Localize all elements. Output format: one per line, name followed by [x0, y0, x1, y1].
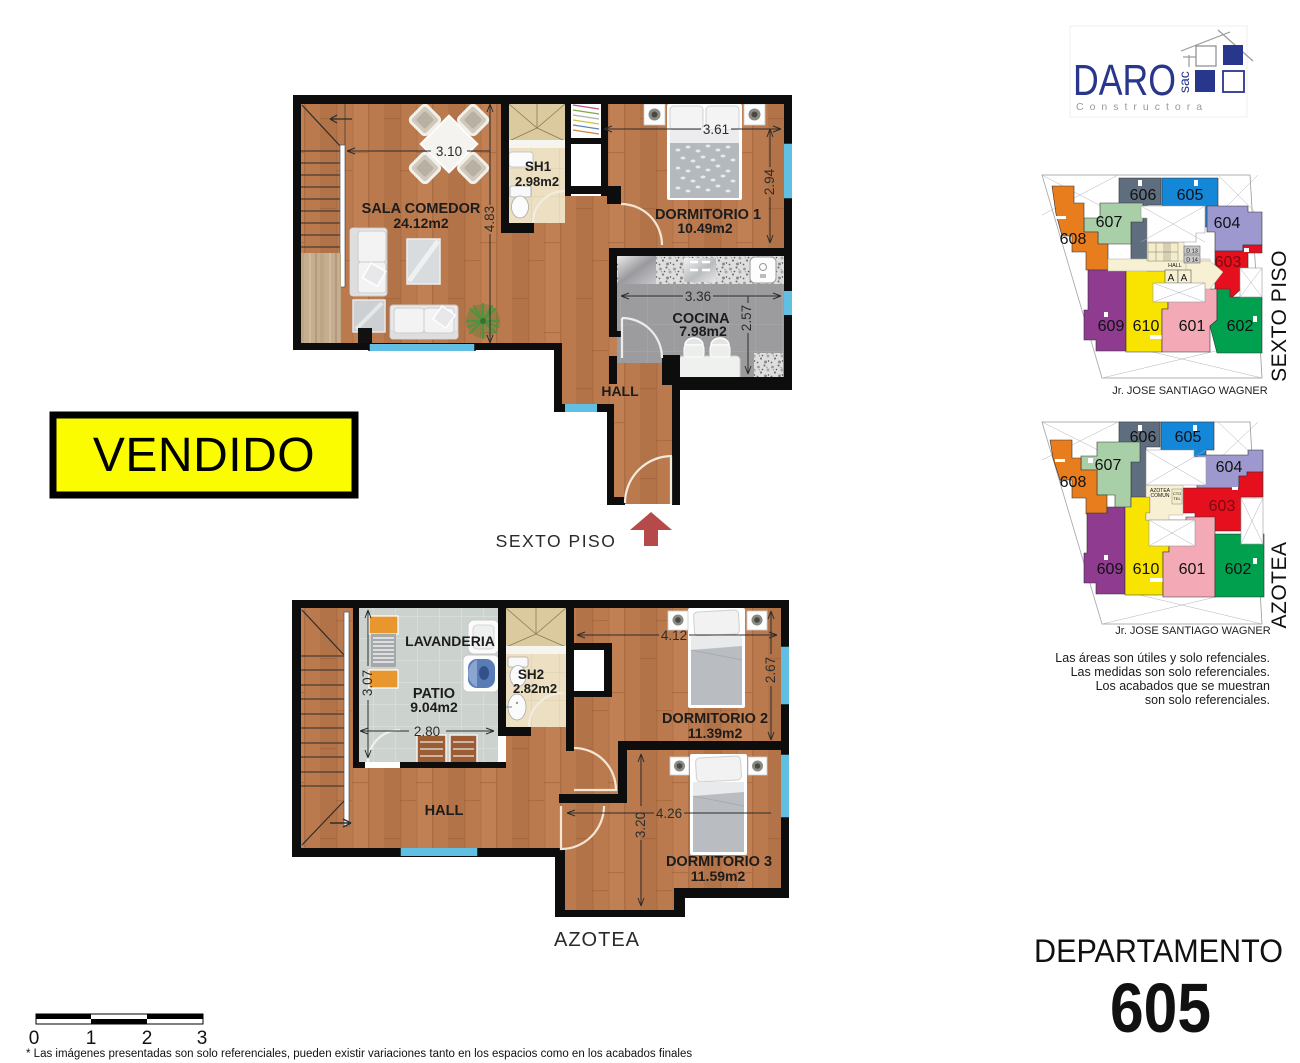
svg-text:607: 607 — [1095, 457, 1122, 474]
svg-text:DARO: DARO — [1073, 56, 1176, 105]
svg-text:1: 1 — [86, 1028, 97, 1049]
svg-text:606: 606 — [1130, 187, 1157, 204]
svg-text:HALL: HALL — [425, 803, 464, 819]
svg-text:son solo referenciales.: son solo referenciales. — [1145, 693, 1270, 707]
svg-text:2.82m2: 2.82m2 — [513, 681, 557, 696]
svg-text:2.67: 2.67 — [763, 657, 778, 683]
svg-text:605: 605 — [1175, 429, 1202, 446]
svg-text:sac: sac — [1176, 71, 1192, 93]
svg-text:SEXTO PISO: SEXTO PISO — [1268, 250, 1291, 382]
svg-text:* Las imágenes presentadas son: * Las imágenes presentadas son solo refe… — [26, 1048, 692, 1060]
svg-text:601: 601 — [1179, 561, 1206, 578]
svg-text:9.04m2: 9.04m2 — [410, 699, 458, 715]
svg-text:603: 603 — [1209, 498, 1236, 515]
svg-text:D 13: D 13 — [1186, 249, 1198, 255]
svg-text:3.10: 3.10 — [436, 144, 462, 159]
svg-text:11.39m2: 11.39m2 — [688, 725, 743, 741]
svg-text:604: 604 — [1216, 459, 1243, 476]
svg-text:2.94: 2.94 — [762, 168, 777, 195]
svg-text:SH2: SH2 — [518, 667, 544, 682]
svg-text:HALL: HALL — [1168, 263, 1182, 269]
svg-text:601: 601 — [1179, 318, 1206, 335]
svg-text:Constructora: Constructora — [1076, 101, 1208, 113]
svg-text:D 14: D 14 — [1186, 258, 1198, 264]
svg-text:Los acabados que se muestran: Los acabados que se muestran — [1096, 679, 1270, 693]
svg-text:Las medidas son solo referenci: Las medidas son solo referenciales. — [1071, 665, 1270, 679]
svg-text:609: 609 — [1098, 318, 1125, 335]
svg-text:602: 602 — [1227, 318, 1254, 335]
svg-text:Las áreas son útiles y solo re: Las áreas son útiles y solo refenciales. — [1055, 651, 1270, 665]
svg-text:Jr. JOSE SANTIAGO WAGNER: Jr. JOSE SANTIAGO WAGNER — [1115, 625, 1271, 637]
svg-text:DEPARTAMENTO: DEPARTAMENTO — [1034, 933, 1283, 969]
svg-text:COMUN: COMUN — [1151, 493, 1170, 499]
svg-text:AZOTEA: AZOTEA — [554, 929, 640, 951]
svg-text:24.12m2: 24.12m2 — [393, 215, 448, 231]
svg-text:4.83: 4.83 — [482, 206, 497, 232]
svg-text:VENDIDO: VENDIDO — [93, 429, 315, 482]
svg-text:3.20: 3.20 — [633, 812, 648, 838]
svg-text:3.36: 3.36 — [685, 289, 711, 304]
svg-text:3: 3 — [197, 1028, 208, 1049]
svg-text:2: 2 — [142, 1028, 153, 1049]
svg-text:608: 608 — [1060, 231, 1087, 248]
svg-text:HALL: HALL — [601, 383, 639, 399]
svg-text:605: 605 — [1177, 187, 1204, 204]
svg-text:SEXTO PISO: SEXTO PISO — [496, 531, 617, 551]
svg-text:TEL: TEL — [1173, 496, 1181, 501]
svg-text:3.07: 3.07 — [360, 670, 375, 696]
svg-text:608: 608 — [1060, 474, 1087, 491]
svg-text:605: 605 — [1110, 969, 1211, 1047]
svg-text:4.26: 4.26 — [656, 806, 682, 821]
svg-text:604: 604 — [1214, 215, 1241, 232]
svg-text:609: 609 — [1097, 561, 1124, 578]
svg-text:0: 0 — [29, 1028, 40, 1049]
svg-text:610: 610 — [1133, 318, 1160, 335]
svg-text:4.12: 4.12 — [661, 628, 687, 643]
svg-text:607: 607 — [1096, 214, 1123, 231]
svg-text:10.49m2: 10.49m2 — [677, 220, 732, 236]
svg-text:SH1: SH1 — [525, 159, 552, 174]
svg-text:2.80: 2.80 — [414, 724, 440, 739]
svg-text:11.59m2: 11.59m2 — [691, 868, 746, 884]
svg-text:7.98m2: 7.98m2 — [679, 323, 727, 339]
svg-text:602: 602 — [1225, 561, 1252, 578]
svg-text:Jr. JOSE SANTIAGO WAGNER: Jr. JOSE SANTIAGO WAGNER — [1112, 385, 1268, 397]
svg-text:AZOTEA: AZOTEA — [1268, 541, 1291, 628]
svg-text:A: A — [1168, 273, 1175, 284]
svg-text:3.61: 3.61 — [703, 122, 729, 137]
svg-text:2.98m2: 2.98m2 — [515, 174, 559, 189]
svg-text:LAVANDERIA: LAVANDERIA — [405, 633, 495, 649]
svg-text:A: A — [1181, 273, 1188, 284]
svg-text:610: 610 — [1133, 561, 1160, 578]
svg-text:2.57: 2.57 — [739, 305, 754, 331]
